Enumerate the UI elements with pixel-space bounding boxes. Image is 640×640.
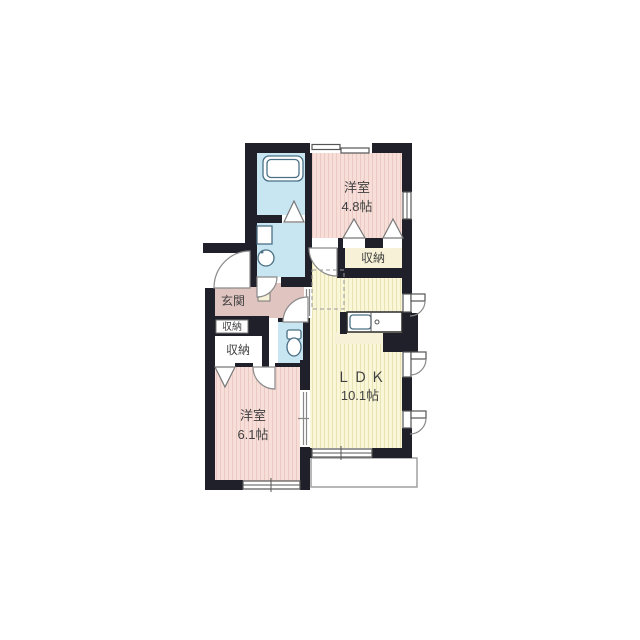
sliding-window-top-left [312, 145, 340, 150]
label-closet-lower: 収納 [226, 343, 250, 357]
label-western-4-8-size: 4.8帖 [341, 199, 372, 214]
washbasin-icon [258, 250, 274, 266]
toilet-icon [287, 330, 301, 356]
label-ldk: ＬＤＫ [337, 369, 388, 385]
label-closet-upper: 収納 [361, 251, 385, 265]
label-entrance: 玄関 [221, 293, 245, 308]
label-closet-entrance: 収納 [222, 320, 242, 333]
floor-plan: 洋室 4.8帖 収納 玄関 収納 収納 ＬＤＫ 10.1帖 洋室 6.1帖 [0, 0, 640, 640]
room-western-6-1-floor [215, 367, 300, 482]
window-western-4-8-east [403, 192, 411, 219]
casement-window-2 [403, 352, 426, 377]
label-ldk-size: 10.1帖 [341, 388, 379, 403]
kitchen-sink-icon [347, 312, 402, 332]
bathtub-icon [263, 156, 303, 181]
balcony [311, 458, 417, 487]
label-western-6-1-size: 6.1帖 [237, 427, 268, 442]
entrance-door-arc [214, 251, 250, 288]
washer-pan-icon [257, 226, 272, 244]
label-western-6-1: 洋室 [240, 408, 266, 423]
label-western-4-8: 洋室 [344, 180, 370, 195]
sliding-window-top-right [341, 148, 369, 153]
floor-plan-page: 洋室 4.8帖 収納 玄関 収納 収納 ＬＤＫ 10.1帖 洋室 6.1帖 [0, 0, 640, 640]
